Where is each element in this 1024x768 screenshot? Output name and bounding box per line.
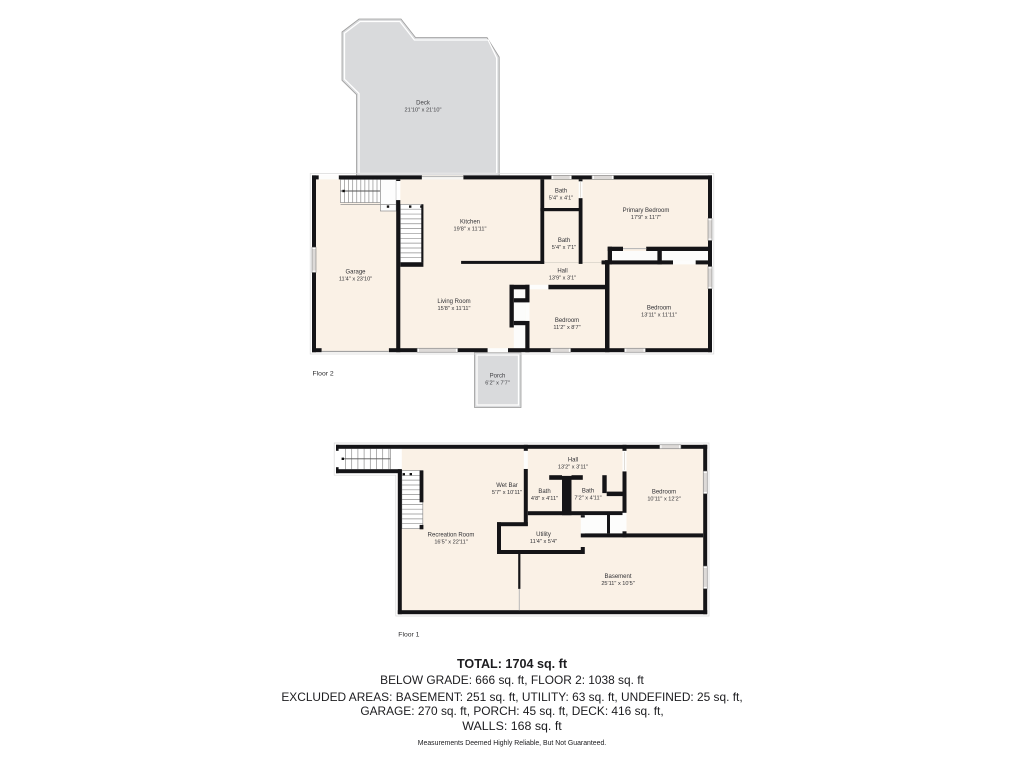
- svg-text:5'4" x 4'1": 5'4" x 4'1": [549, 195, 573, 201]
- svg-text:Floor 1: Floor 1: [398, 632, 419, 639]
- svg-text:13'11" x 11'11": 13'11" x 11'11": [641, 313, 677, 319]
- svg-text:Wet Bar: Wet Bar: [496, 483, 518, 489]
- svg-text:16'5" x 22'11": 16'5" x 22'11": [434, 540, 467, 546]
- svg-text:11'2" x 8'7": 11'2" x 8'7": [553, 325, 580, 331]
- svg-text:19'8" x 11'11": 19'8" x 11'11": [454, 227, 487, 233]
- svg-text:21'10" x 21'10": 21'10" x 21'10": [405, 108, 442, 114]
- svg-text:Garage: Garage: [345, 270, 366, 276]
- svg-text:15'8" x 11'11": 15'8" x 11'11": [438, 306, 471, 312]
- svg-text:Recreation Room: Recreation Room: [428, 533, 475, 539]
- svg-text:5'7" x 10'11": 5'7" x 10'11": [492, 490, 522, 496]
- svg-text:Hall: Hall: [568, 458, 578, 464]
- svg-text:13'2" x 3'11": 13'2" x 3'11": [558, 465, 588, 471]
- svg-text:Bedroom: Bedroom: [555, 318, 579, 324]
- svg-text:Basement: Basement: [604, 574, 631, 580]
- svg-text:Bedroom: Bedroom: [647, 306, 671, 312]
- svg-text:Bath: Bath: [555, 188, 567, 194]
- svg-text:11'4" x 5'4": 11'4" x 5'4": [530, 539, 557, 545]
- svg-text:Living Room: Living Room: [437, 299, 470, 305]
- svg-text:Primary Bedroom: Primary Bedroom: [623, 208, 670, 214]
- svg-text:7'2" x 4'11": 7'2" x 4'11": [574, 496, 601, 502]
- svg-text:Porch: Porch: [490, 374, 506, 380]
- svg-text:Bath: Bath: [538, 489, 550, 495]
- svg-text:6'2" x 7'7": 6'2" x 7'7": [485, 381, 509, 387]
- svg-text:Floor 2: Floor 2: [313, 371, 334, 378]
- svg-text:25'11" x 10'5": 25'11" x 10'5": [601, 581, 634, 587]
- svg-text:5'4" x 7'1": 5'4" x 7'1": [552, 245, 576, 251]
- svg-text:17'9" x 11'7": 17'9" x 11'7": [631, 215, 661, 221]
- svg-text:10'11" x 12'2": 10'11" x 12'2": [647, 496, 680, 502]
- svg-text:Utility: Utility: [536, 532, 551, 538]
- svg-text:11'4" x 23'10": 11'4" x 23'10": [339, 277, 372, 283]
- svg-text:Kitchen: Kitchen: [460, 220, 480, 226]
- svg-text:Bath: Bath: [582, 489, 594, 495]
- svg-text:Hall: Hall: [557, 268, 567, 274]
- svg-text:Deck: Deck: [416, 101, 431, 107]
- svg-text:4'8" x 4'11": 4'8" x 4'11": [531, 496, 558, 502]
- svg-text:13'9" x 3'1": 13'9" x 3'1": [549, 275, 577, 281]
- svg-text:Bath: Bath: [558, 238, 570, 244]
- svg-text:Bedroom: Bedroom: [652, 489, 676, 495]
